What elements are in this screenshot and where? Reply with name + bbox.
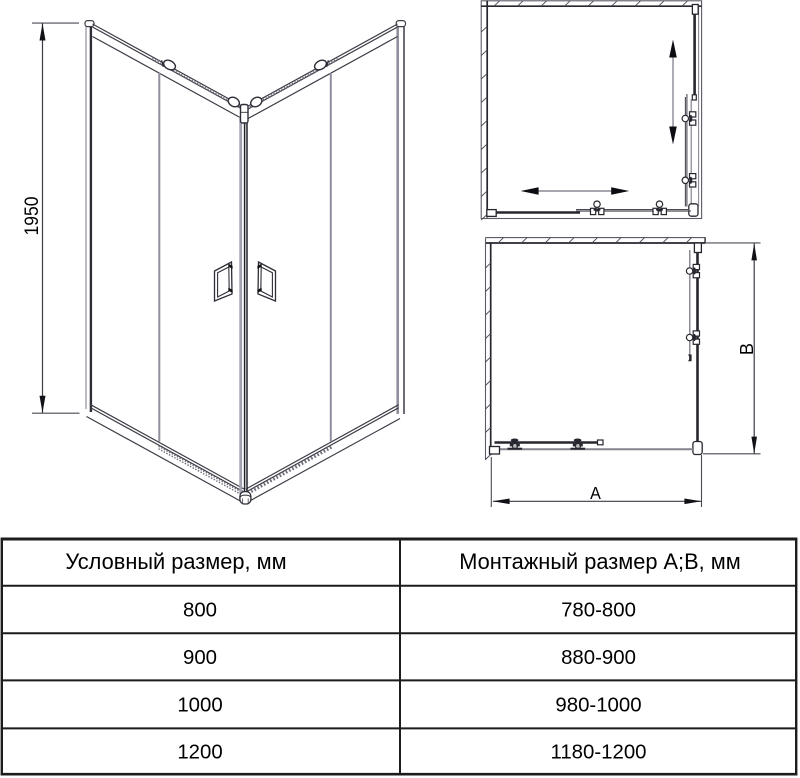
svg-text:Условный размер, мм: Условный размер, мм xyxy=(65,549,286,574)
svg-text:800: 800 xyxy=(183,600,217,622)
svg-text:900: 900 xyxy=(183,647,217,669)
svg-text:1000: 1000 xyxy=(177,694,222,716)
svg-text:1180-1200: 1180-1200 xyxy=(551,741,647,763)
svg-text:1200: 1200 xyxy=(177,741,222,763)
svg-text:A: A xyxy=(590,483,601,503)
svg-text:1950: 1950 xyxy=(20,196,42,235)
svg-text:780-800: 780-800 xyxy=(561,600,636,622)
svg-text:B: B xyxy=(737,343,757,355)
svg-text:Монтажный размер А;В, мм: Монтажный размер А;В, мм xyxy=(459,549,740,574)
svg-text:980-1000: 980-1000 xyxy=(555,694,641,716)
svg-text:880-900: 880-900 xyxy=(561,647,636,669)
